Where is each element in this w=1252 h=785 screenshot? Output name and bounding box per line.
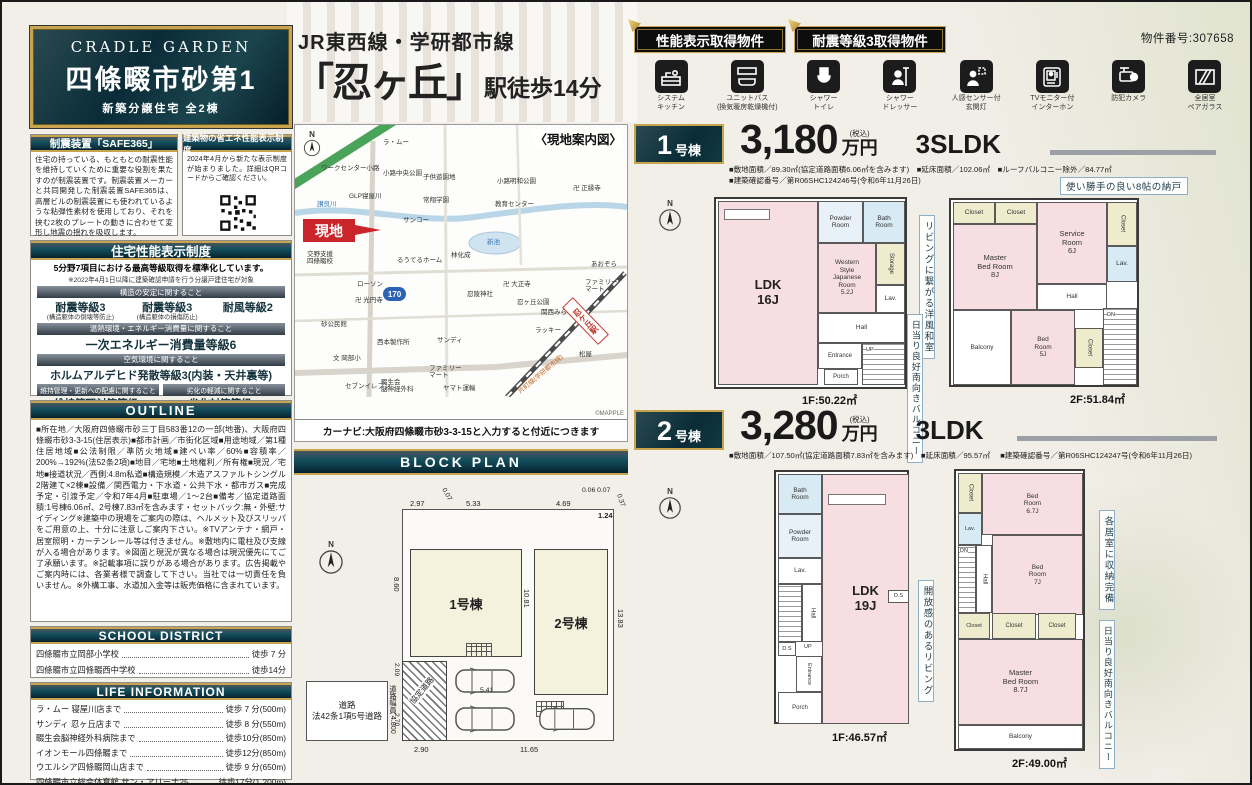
route-170-shield: 170 [383,287,406,301]
site-marker: 現地 [303,219,355,242]
unit-suffix: 号棟 [675,426,701,445]
map-label: 常翔学園 [423,197,449,204]
feature-shower-dresser: シャワー ドレッサー [863,60,937,113]
unit1-floor2-plan: Closet Closet Master Bed Room 8J Service… [949,198,1139,387]
room: Closet [953,202,995,224]
room: Bath Room [863,201,905,243]
room: Bed Room 7J [992,535,1083,615]
room: Lav. [958,513,982,545]
dimension: 5.41 [480,687,493,694]
map-title: 〈現地案内図〉 [534,129,622,148]
dimension: 0.37 [615,493,626,508]
life-name: ウエルシア四條畷岡山店まで [36,761,144,773]
unit-layout: 3SLDK [916,133,1001,156]
map-label: るうてるホーム [397,257,442,264]
map-label: 子供遊園地 [423,174,456,181]
unit-price: 3,280 [740,408,838,443]
unit2-price-row: 3,280 (税込) 万円 3LDK [740,408,984,443]
unit2-badge: 2 号棟 [634,410,724,450]
map-label: 文 岡部小 [333,355,361,362]
map-label: 卍 大正寺 [503,281,531,288]
room: Closet [1107,202,1137,246]
sensor-light-icon [960,60,993,93]
dimension: 2.90 [414,745,429,754]
feature-label: シャワー トイレ [810,95,838,113]
outline-title: OUTLINE [31,401,291,420]
performance-lead: 5分野7項目における最高等級取得を標準化しています。 [31,262,291,274]
school-distance: 徒歩14分 [252,664,286,676]
unit1-floor1-plan: LDK 16J Powder Room Bath Room Western St… [714,197,907,389]
room: Bed Room 6.7J [982,473,1083,535]
unit-layout: 3LDK [916,419,984,442]
security-camera-icon [1112,60,1145,93]
room: Hall [976,545,992,613]
dimension: 0.07 [440,487,453,502]
unit-spec-line: ■建築確認番号／第R06SHC124247号(令和6年11月26日) [1000,451,1192,460]
life-distance: 徒歩 7 分(500m) [226,703,286,715]
life-distance: 徒歩12分(850m) [226,747,286,759]
outline-panel: OUTLINE ■所在地／大阪府四條畷市砂三丁目583番12の一部(地番)、大阪… [30,400,292,622]
unit2-floor2-plan: Closet Bed Room 6.7J Lav. DN Hall Bed Ro… [954,469,1085,751]
energy-body: 2024年4月から新たな表示制度が始まりました。詳細はQRコードからご確認くださ… [183,152,291,187]
performance-section-air: 空気環境に関すること [37,354,285,366]
badge-ribbon [788,19,801,32]
school-name: 四條畷市立四條畷西中学校 [36,664,136,676]
unit-number: 1 [657,132,672,159]
life-distance: 徒歩 8 分(550m) [226,718,286,730]
performance-panel: 住宅性能表示制度 5分野7項目における最高等級取得を標準化しています。 ※202… [30,240,292,396]
map-label: ヤマト運輸 [443,385,476,392]
map-label: 砂公民館 [321,321,347,328]
performance-section-deterioration: 劣化の軽減に関すること [163,384,285,396]
property-number: 物件番号:307658 [1141,30,1234,46]
unit2-floor2-area: 2F:49.00㎡ [1012,755,1067,771]
stairs [958,545,976,613]
unit-price-unit: 万円 [842,139,878,157]
badge-performance-label: 性能表示取得物件 [656,30,764,50]
road-label: 道路 法42条1項5号道路 [306,681,388,741]
stairs-direction: DN [960,548,968,554]
stairs [1103,308,1137,385]
room: Hall [818,313,905,343]
grid-pad [466,643,492,657]
life-name: 四條畷市立総合体育館 サン・アリーナ25 [36,776,189,785]
dimension: 2.97 [410,499,425,508]
divider-rule [1017,436,1217,441]
life-name: イオンモール四條畷まで [36,747,127,759]
room: Entrance [796,656,822,692]
area-map: N ラ・ムー ワークセンター小路 小路中央公園 子供遊園地 小路明和公園 卍 正… [294,124,628,442]
qr-code [219,194,257,232]
feature-label: システム キッチン [657,95,685,113]
unit1-floor2-area: 2F:51.84㎡ [1070,391,1125,407]
safe365-panel: 制震装置「SAFE365」 住宅の持っている、もともとの耐震性能を維持していくた… [30,134,178,236]
room: Entrance [818,343,862,369]
badge-seismic: 耐震等級3取得物件 [794,26,946,53]
map-label: 卍 正縁寺 [573,185,601,192]
dimension: 11.65 [520,745,538,754]
map-label: 卍 光円寺 [355,297,383,304]
car-icon [454,705,516,733]
unit1-price-row: 3,180 (税込) 万円 3SLDK [740,122,1001,157]
room: D.S [778,642,796,656]
unit1-compass: N [658,200,682,232]
stairs-direction: DN [1107,312,1115,318]
room: Closet [958,613,990,639]
life-distance: 徒歩17分(1,200m) [219,776,286,785]
unit-number: 2 [657,418,672,445]
stairs [778,584,802,642]
grade-seismic-1-note: (構造躯体の倒壊等防止) [37,315,124,322]
room: Storage [876,243,905,285]
divider-rule [1050,150,1216,155]
shower-dresser-icon [883,60,916,93]
feature-sensor-light: 人感センサー付 玄関灯 [939,60,1013,113]
room: Master Bed Room 8.7J [958,639,1083,725]
feature-kitchen: システム キッチン [634,60,708,113]
map-label: 小路中央公園 [383,170,422,177]
unit-price-unit: 万円 [842,425,878,443]
room: Hall [802,584,822,642]
feature-label: TVモニター付 インターホン [1030,95,1074,113]
map-label: ラッキー [535,327,561,334]
room: Closet [1075,328,1103,368]
map-label: GLP寝屋川 [349,193,382,200]
feature-label: 人感センサー付 玄関灯 [952,95,1001,113]
performance-section-maintenance: 維持管理・更新への配慮に関すること [37,384,159,396]
brand-name: CRADLE GARDEN [71,38,252,56]
dimension: 2.09 [393,663,400,676]
life-name: 畷生会脳神経外科病院まで [36,732,136,744]
shower-toilet-icon [807,60,840,93]
map-label: あおぞら [591,261,617,268]
life-name: ラ・ムー 寝屋川店まで [36,703,121,715]
system-kitchen-icon [655,60,688,93]
grade-seismic-2: 耐震等級3 [124,299,211,315]
life-title: LIFE INFORMATION [31,683,291,700]
kitchen-counter [724,209,770,220]
dimension: 2.70 [393,713,400,726]
car-icon [538,705,596,733]
room: Powder Room [778,514,822,558]
block-unit2: 2号棟 [534,549,608,695]
map-credit: ©MAPPLE [595,411,624,417]
map-label: サンコー [403,217,429,224]
room: D.S [888,590,909,603]
unit2-spec: ■敷地面積／107.50㎡(協定道路面積7.83㎡を含みます) ■延床面積／95… [729,450,1244,461]
development-subtitle: 新築分譲住宅 全2棟 [102,100,219,116]
room: Lav. [876,285,905,313]
room: Porch [824,369,858,385]
room: Closet [995,202,1037,224]
room: Balcony [958,725,1083,749]
feature-label: 全居室 ペアガラス [1188,95,1223,113]
feature-icons-row: システム キッチン ユニットバス (換気暖房乾燥機付) シャワー トイレ シャワ… [634,60,1242,113]
unit-spec-line: ■敷地面積／107.50㎡(協定道路面積7.83㎡を含みます) ■延床面積／95… [729,451,990,460]
station-title: 「忍ヶ丘」駅徒歩14分 [294,50,602,108]
station-walk: 駅徒歩14分 [484,75,602,101]
dimension: 4.69 [556,499,571,508]
road-width-label: 道路幅員 4.800 [388,685,398,734]
dimension: 1.24 [598,511,613,520]
block-plan: BLOCK PLAN N 1号棟 2号棟 協定道路 道路 法42条1項5号道路 … [294,449,628,779]
feature-shower-toilet: シャワー トイレ [787,60,861,113]
map-label: 教育センター [495,201,534,208]
block-plan-title: BLOCK PLAN [294,449,628,475]
grade-formaldehyde: ホルムアルデヒド発散等級3(内装・天井裏等) [31,367,291,383]
unit2-floor1-plan: Bath Room Powder Room Lav. Hall UP D.S E… [774,470,909,724]
feature-pair-glass: 全居室 ペアガラス [1168,60,1242,113]
block-plan-compass: N [318,541,344,575]
performance-section-structure: 構造の安定に関すること [37,286,285,298]
room: Bed Room 5J [1011,310,1075,385]
map-canvas: N ラ・ムー ワークセンター小路 小路中央公園 子供遊園地 小路明和公園 卍 正… [295,125,627,397]
dimension: 8.60 [392,577,401,592]
map-label: 小路明和公園 [497,178,536,185]
map-label: 忍ヶ丘公園 [517,299,550,306]
room: Balcony [953,310,1011,385]
school-name: 四條畷市立岡部小学校 [36,648,119,660]
unit2-callout-living: 開放感のあるリビング [918,580,934,702]
school-district-panel: SCHOOL DISTRICT 四條畷市立岡部小学校徒歩 7 分 四條畷市立四條… [30,626,292,678]
unit-spec-line: ■敷地面積／89.30㎡(協定道路面積6.06㎡を含みます) ■延床面積／102… [729,164,1244,175]
development-name: 四條畷市砂第1 [65,58,256,97]
unit-price: 3,180 [740,122,838,157]
badge-performance: 性能表示取得物件 [634,26,786,53]
map-label: 忍陵神社 [467,291,493,298]
unit2-callout-balcony: 日当り良好南向きバルコニー [1099,620,1115,769]
room: Closet [992,613,1036,639]
stairs-direction: UP [804,644,812,650]
feature-security-camera: 防犯カメラ [1092,60,1166,113]
dimension: 10.81 [522,589,531,608]
map-compass: N [303,131,321,157]
feature-label: ユニットバス (換気暖房乾燥機付) [717,95,778,113]
flyer-page: CRADLE GARDEN 四條畷市砂第1 新築分譲住宅 全2棟 制震装置「SA… [0,0,1252,785]
map-label: 新池 [487,239,500,246]
dimension: 5.33 [466,499,481,508]
map-label: 松屋 [579,351,592,358]
outline-body: ■所在地／大阪府四條畷市砂三丁目583番12の一部(地番)、大阪府四條畷市砂3-… [31,420,291,595]
map-label: サンディ [437,337,463,344]
room: Porch [778,692,822,724]
unit2-compass: N [658,488,682,520]
tv-intercom-icon [1036,60,1069,93]
grade-wind: 耐風等級2 [211,299,285,315]
unit-suffix: 号棟 [675,140,701,159]
map-label: 交野支援 四條畷校 [307,251,333,266]
life-information-panel: LIFE INFORMATION ラ・ムー 寝屋川店まで徒歩 7 分(500m)… [30,682,292,780]
room: Hall [1037,284,1107,310]
room: Closet [1038,613,1076,639]
room: Western Style Japanese Room 5.2J [818,243,876,313]
map-label: ローソン [357,281,383,288]
map-label: 林化成 [451,252,471,259]
dimension: 13.83 [616,609,625,628]
unit1-badge: 1 号棟 [634,124,724,164]
map-label: ラ・ムー [383,139,409,146]
map-label: 讃良川 [317,201,337,208]
room: Service Room 6J [1037,202,1107,284]
grade-seismic-1: 耐震等級3 [37,299,124,315]
map-label: ワークセンター小路 [321,165,380,172]
grade-energy: 一次エネルギー消費量等級6 [31,336,291,353]
room: Closet [958,473,982,513]
room: LDK 16J [718,201,818,385]
kitchen-counter [828,494,886,505]
map-label: 西本製作所 [377,339,410,346]
school-distance: 徒歩 7 分 [252,648,286,660]
unit-bath-icon [731,60,764,93]
life-distance: 徒歩 9 分(650m) [226,761,286,773]
room: Powder Room [818,201,863,243]
brand-logo-panel: CRADLE GARDEN 四條畷市砂第1 新築分譲住宅 全2棟 [30,26,292,128]
energy-label-panel: 建築物の省エネ性能表示制度 2024年4月から新たな表示制度が始まりました。詳細… [182,134,292,236]
pair-glass-icon [1188,60,1221,93]
room: Lav. [778,558,822,584]
station-name: 「忍ヶ丘」 [294,61,484,105]
energy-title: 建築物の省エネ性能表示制度 [183,135,291,152]
block-unit1: 1号棟 [410,549,522,657]
grade-seismic-2-note: (構造躯体の損傷防止) [124,315,211,322]
room: Bath Room [778,474,822,514]
unit2-callout-storage: 各居室に収納完備 [1099,510,1115,610]
map-caption: カーナビ:大阪府四條畷市砂3-3-15と入力すると付近につきます [295,419,627,441]
map-label: ファミリー マート [429,365,462,380]
unit1-callout-storage: 使い勝手の良い8帖の納戸 [1060,177,1188,195]
stairs-direction: UP [866,347,874,353]
feature-label: シャワー ドレッサー [882,95,917,113]
badge-seismic-label: 耐震等級3取得物件 [812,30,928,50]
room: Master Bed Room 8J [953,224,1037,310]
performance-section-energy: 温熱環境・エネルギー消費量に関すること [37,323,285,335]
dimension: 0.06 0.07 [582,487,610,494]
feature-unit-bath: ユニットバス (換気暖房乾燥機付) [710,60,784,113]
map-label: ファミリー マート [585,279,618,294]
unit2-floor1-area: 1F:46.57㎡ [832,729,887,745]
room: Lav. [1107,246,1137,282]
site-marker-label: 現地 [315,221,343,241]
safe365-title: 制震装置「SAFE365」 [31,135,177,152]
safe365-body: 住宅の持っている、もともとの耐震性能を維持していくために重要な役割を果たすのが制… [31,152,177,242]
performance-note: ※2022年4月1日以降に建築確認申請を行う分譲戸建住宅が対象 [31,274,291,284]
map-label: 畷生会 脳神経外科 [381,379,414,394]
life-distance: 徒歩10分(850m) [226,732,286,744]
feature-tv-intercom: TVモニター付 インターホン [1015,60,1089,113]
life-name: サンディ 忍ヶ丘店まで [36,718,121,730]
performance-title: 住宅性能表示制度 [31,241,291,260]
feature-label: 防犯カメラ [1111,95,1146,104]
school-title: SCHOOL DISTRICT [31,627,291,644]
